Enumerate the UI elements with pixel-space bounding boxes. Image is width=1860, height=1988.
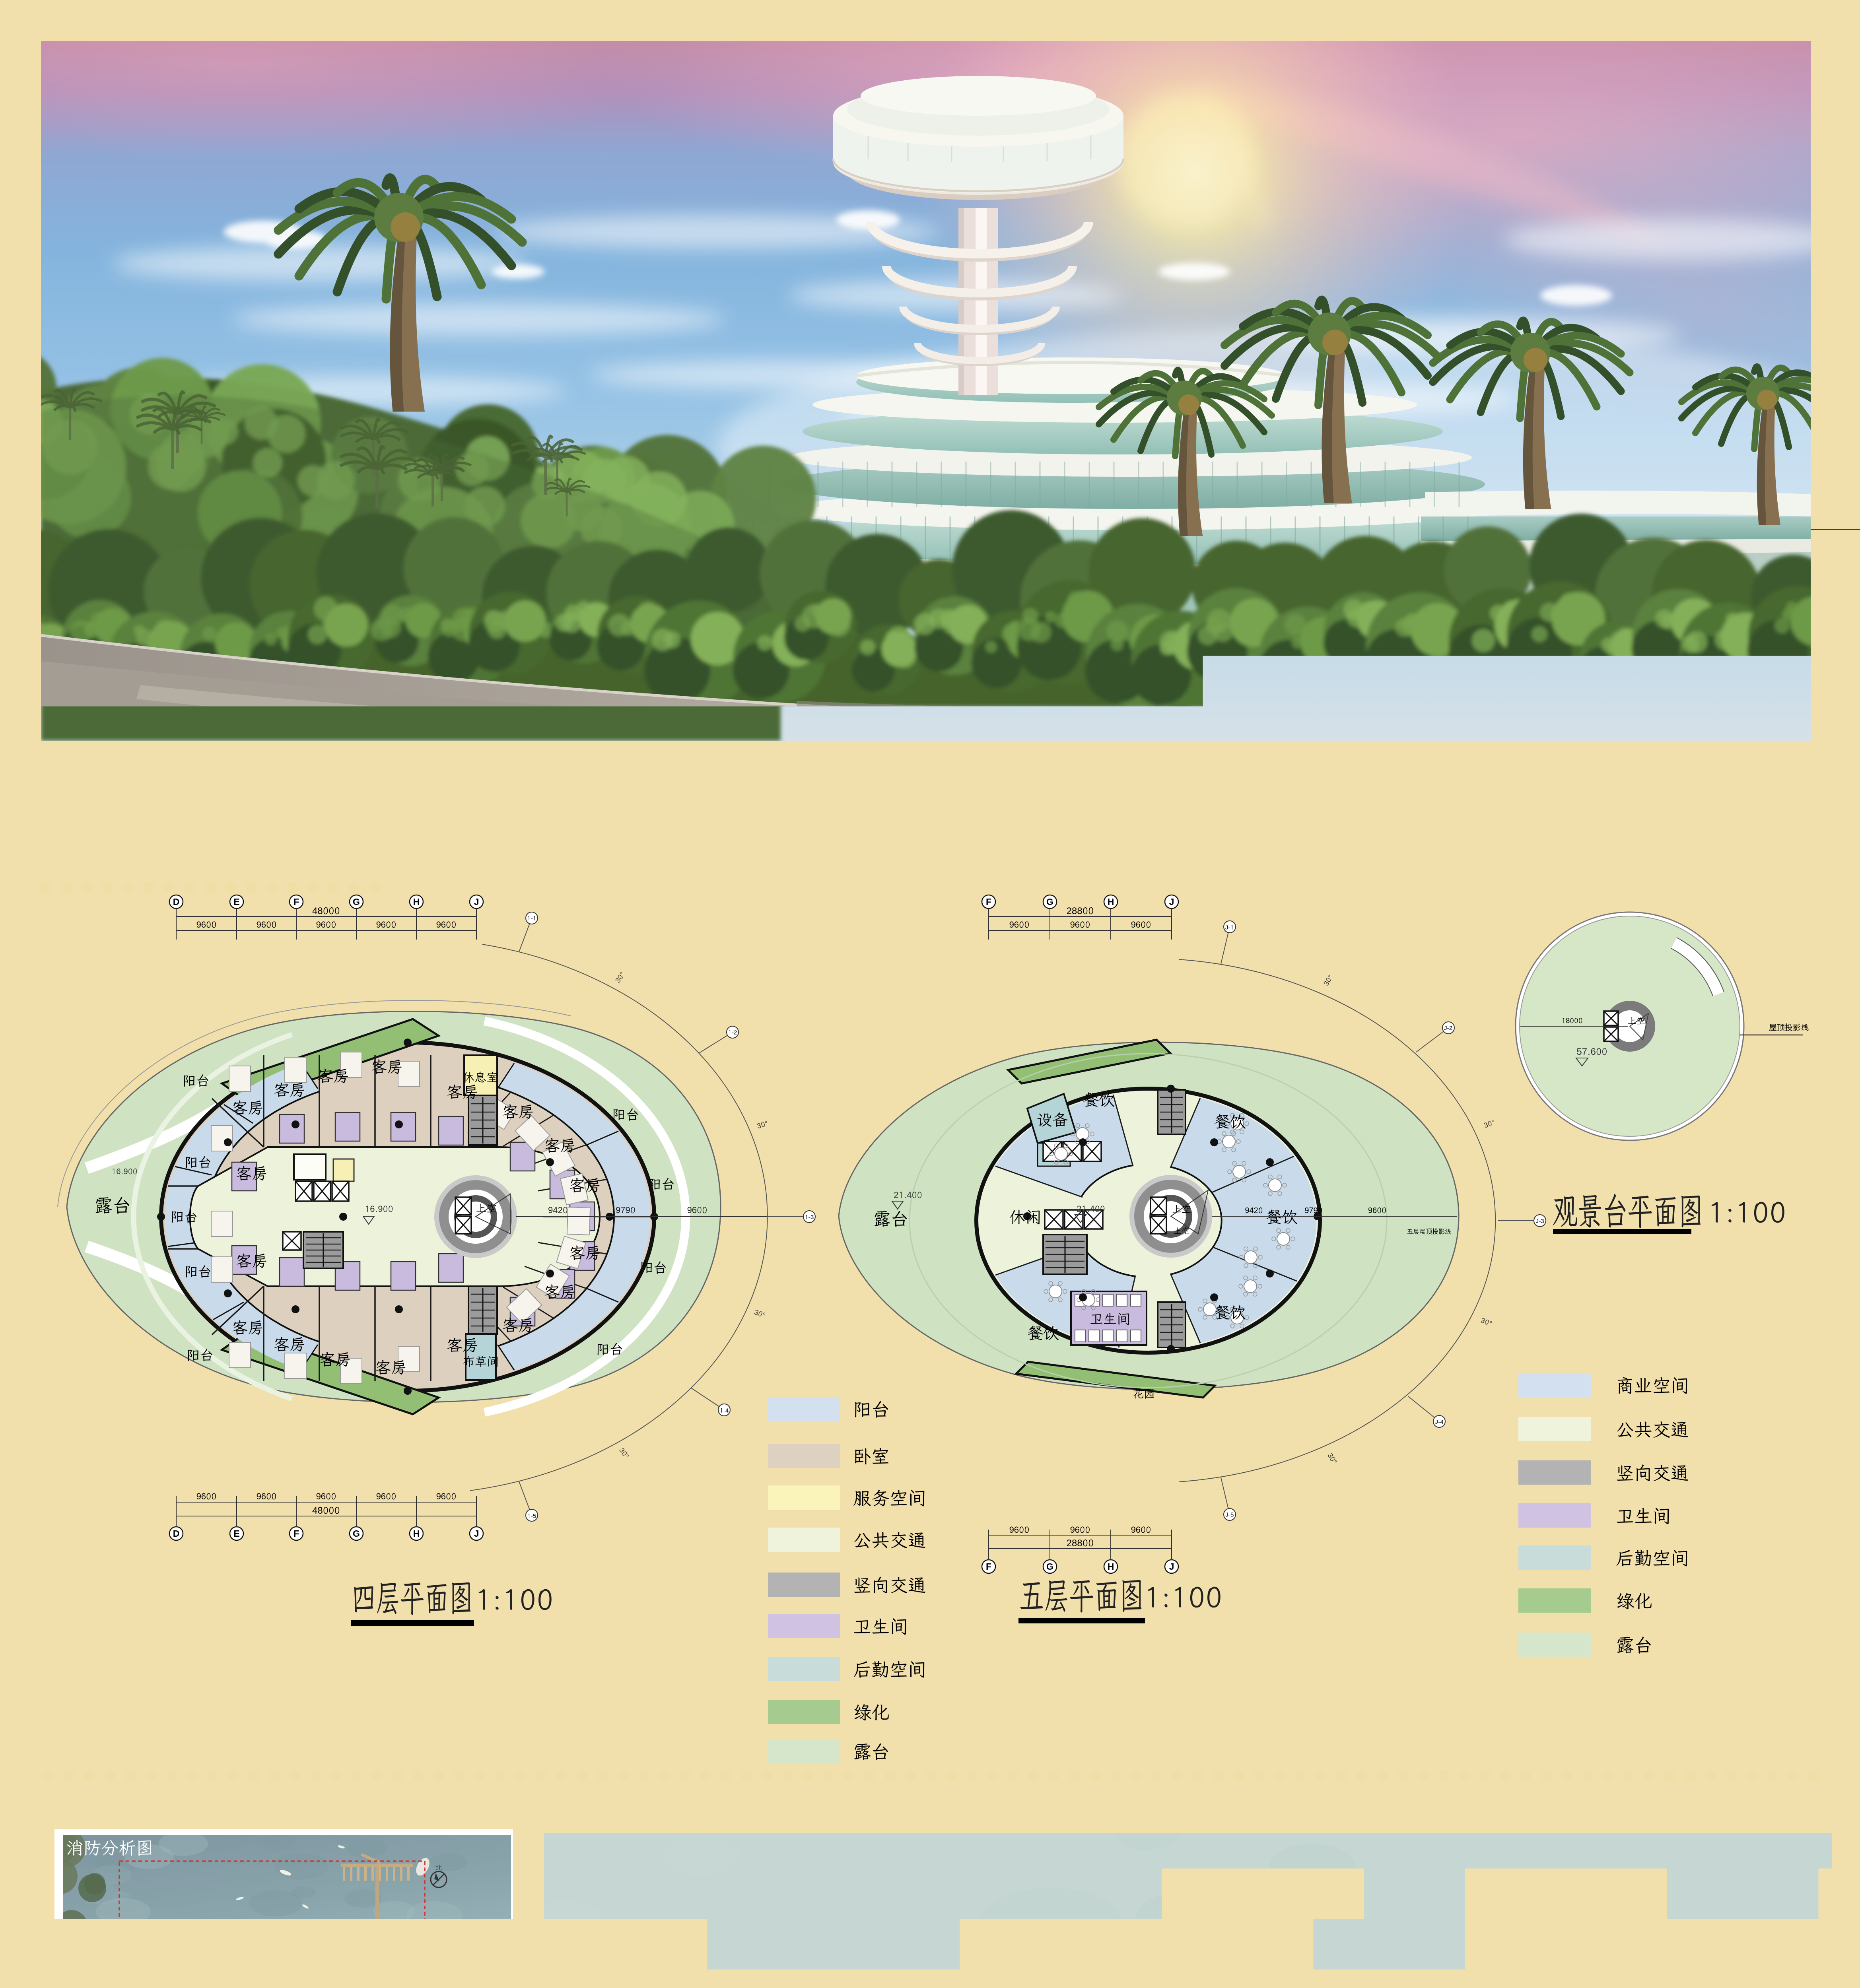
svg-text:客房: 客房 xyxy=(319,1349,351,1370)
svg-text:客房: 客房 xyxy=(236,1163,268,1184)
svg-text:H: H xyxy=(413,1527,420,1540)
svg-text:上空: 上空 xyxy=(476,1202,497,1215)
svg-text:F: F xyxy=(986,895,991,908)
svg-text:消防登高场地: 消防登高场地 xyxy=(458,1947,503,1957)
svg-text:卧室: 卧室 xyxy=(853,1444,890,1468)
svg-text:观景台平面图: 观景台平面图 xyxy=(1552,1186,1703,1235)
svg-text:9600: 9600 xyxy=(1070,1524,1090,1536)
svg-text:30°: 30° xyxy=(753,1307,767,1320)
svg-text:布草间: 布草间 xyxy=(463,1353,499,1369)
svg-text:阳台: 阳台 xyxy=(185,1262,212,1280)
svg-text:G: G xyxy=(1046,895,1053,908)
svg-text:阳台: 阳台 xyxy=(640,1258,667,1276)
svg-text:J: J xyxy=(474,1527,479,1540)
svg-text:E: E xyxy=(233,1527,239,1540)
svg-text:绿化: 绿化 xyxy=(853,1701,890,1724)
svg-text:9420: 9420 xyxy=(1245,1205,1263,1215)
svg-text:阳台: 阳台 xyxy=(648,1175,675,1193)
svg-text:9600: 9600 xyxy=(436,919,457,930)
svg-text:9600: 9600 xyxy=(1368,1205,1386,1215)
svg-text:客房: 客房 xyxy=(502,1315,534,1336)
svg-text:客房: 客房 xyxy=(236,1250,268,1271)
svg-text:四层平面图: 四层平面图 xyxy=(352,1573,473,1621)
svg-text:F: F xyxy=(293,895,299,908)
svg-text:18000: 18000 xyxy=(1561,1016,1582,1025)
svg-text:消防分析图: 消防分析图 xyxy=(66,1836,154,1859)
svg-text:客房: 客房 xyxy=(502,1101,534,1122)
svg-text:16.900: 16.900 xyxy=(365,1203,393,1215)
svg-text:客房: 客房 xyxy=(232,1317,264,1338)
svg-text:48000: 48000 xyxy=(312,1504,340,1516)
svg-text:9600: 9600 xyxy=(1009,1524,1030,1536)
svg-text:露台: 露台 xyxy=(873,1207,908,1230)
svg-text:客房: 客房 xyxy=(569,1242,601,1263)
svg-text:卫生间: 卫生间 xyxy=(1090,1310,1130,1328)
svg-text:1-4: 1-4 xyxy=(720,1407,729,1414)
svg-text:J: J xyxy=(474,895,479,908)
svg-text:服务空间: 服务空间 xyxy=(853,1486,926,1510)
svg-text:9600: 9600 xyxy=(1131,1524,1151,1536)
svg-text:公共交通: 公共交通 xyxy=(1616,1418,1689,1442)
svg-text:28800: 28800 xyxy=(1067,1536,1094,1549)
svg-text:9600: 9600 xyxy=(1009,919,1030,930)
svg-text:客房: 客房 xyxy=(371,1056,403,1077)
svg-text:餐饮: 餐饮 xyxy=(1083,1089,1115,1110)
svg-text:F: F xyxy=(293,1527,299,1540)
svg-text:21.400: 21.400 xyxy=(1077,1203,1105,1215)
svg-text:阳台: 阳台 xyxy=(183,1072,210,1089)
svg-text:H: H xyxy=(413,895,420,908)
svg-text:餐饮: 餐饮 xyxy=(1266,1207,1298,1227)
svg-text:阳台: 阳台 xyxy=(596,1340,623,1358)
svg-text:阳台: 阳台 xyxy=(612,1105,639,1123)
svg-text:客房: 客房 xyxy=(544,1281,576,1302)
svg-text:1-3: 1-3 xyxy=(805,1213,814,1221)
svg-text:28800: 28800 xyxy=(1067,904,1094,917)
svg-text:客房: 客房 xyxy=(274,1334,305,1355)
svg-text:绿化: 绿化 xyxy=(1616,1589,1652,1613)
svg-text:阳台: 阳台 xyxy=(185,1153,212,1171)
svg-text:客房: 客房 xyxy=(569,1175,601,1196)
svg-text:露台: 露台 xyxy=(94,1194,131,1217)
svg-text:F: F xyxy=(986,1560,991,1573)
svg-text:9790: 9790 xyxy=(616,1204,636,1216)
svg-text:卫生间: 卫生间 xyxy=(853,1615,908,1639)
svg-text:卫生间: 卫生间 xyxy=(1616,1504,1671,1528)
svg-text:21.400: 21.400 xyxy=(894,1189,922,1201)
svg-text:1:100: 1:100 xyxy=(1144,1578,1223,1615)
svg-text:阳台: 阳台 xyxy=(187,1346,214,1364)
svg-text:30°: 30° xyxy=(613,970,627,985)
svg-text:1-1: 1-1 xyxy=(527,915,536,922)
svg-text:上空: 上空 xyxy=(1628,1015,1645,1027)
svg-text:9600: 9600 xyxy=(257,1491,277,1502)
svg-text:48000: 48000 xyxy=(312,904,340,917)
svg-text:休息室: 休息室 xyxy=(463,1069,498,1085)
svg-text:9600: 9600 xyxy=(316,919,336,930)
svg-text:竖向交通: 竖向交通 xyxy=(853,1573,926,1597)
svg-text:后勤空间: 后勤空间 xyxy=(1616,1546,1689,1570)
svg-text:9600: 9600 xyxy=(436,1491,457,1502)
svg-text:客房: 客房 xyxy=(232,1097,264,1118)
svg-text:客房: 客房 xyxy=(317,1066,349,1086)
svg-text:9790: 9790 xyxy=(1304,1205,1322,1215)
svg-text:9600: 9600 xyxy=(196,1491,217,1502)
svg-text:9600: 9600 xyxy=(376,919,396,930)
svg-text:商业空间: 商业空间 xyxy=(1616,1374,1689,1398)
svg-text:五层层顶投影线: 五层层顶投影线 xyxy=(1407,1227,1451,1236)
svg-text:后勤空间: 后勤空间 xyxy=(853,1658,926,1681)
svg-text:J-1: J-1 xyxy=(1225,924,1234,931)
svg-text:餐饮: 餐饮 xyxy=(1027,1323,1059,1343)
svg-text:9600: 9600 xyxy=(376,1491,396,1502)
svg-text:餐饮: 餐饮 xyxy=(1214,1302,1246,1323)
svg-text:G: G xyxy=(353,895,360,908)
svg-text:休闲: 休闲 xyxy=(1009,1207,1041,1227)
svg-text:9600: 9600 xyxy=(1070,919,1090,930)
svg-text:30°: 30° xyxy=(1321,973,1335,987)
svg-text:J: J xyxy=(1169,895,1174,908)
svg-text:J: J xyxy=(1169,1560,1174,1573)
svg-text:花园: 花园 xyxy=(1133,1386,1155,1401)
svg-text:公共交通: 公共交通 xyxy=(853,1528,926,1552)
svg-text:露台: 露台 xyxy=(853,1740,890,1764)
svg-text:餐饮: 餐饮 xyxy=(1214,1111,1246,1132)
svg-text:1-5: 1-5 xyxy=(527,1512,536,1520)
svg-text:客房: 客房 xyxy=(375,1357,407,1378)
svg-text:设备: 设备 xyxy=(1036,1109,1068,1130)
svg-text:J-3: J-3 xyxy=(1535,1217,1544,1225)
svg-text:露台: 露台 xyxy=(1616,1633,1652,1657)
svg-text:16.900: 16.900 xyxy=(111,1166,137,1176)
svg-text:30°: 30° xyxy=(1479,1316,1493,1329)
svg-text:北: 北 xyxy=(436,1864,442,1872)
svg-text:E: E xyxy=(233,895,239,908)
svg-text:阳台: 阳台 xyxy=(853,1398,890,1421)
svg-text:屋顶投影线: 屋顶投影线 xyxy=(1769,1022,1809,1033)
svg-text:客房: 客房 xyxy=(447,1335,478,1355)
svg-text:消防流线: 消防流线 xyxy=(458,1959,488,1969)
svg-text:9600: 9600 xyxy=(687,1204,707,1216)
svg-text:D: D xyxy=(173,1527,180,1540)
svg-text:J-4: J-4 xyxy=(1435,1418,1443,1426)
svg-text:客房: 客房 xyxy=(274,1079,305,1100)
svg-text:阳台: 阳台 xyxy=(171,1208,198,1225)
svg-text:五层平面图: 五层平面图 xyxy=(1019,1571,1144,1619)
svg-text:H: H xyxy=(1108,895,1114,908)
svg-text:D: D xyxy=(173,895,180,908)
svg-text:9600: 9600 xyxy=(1131,919,1151,930)
svg-text:30°: 30° xyxy=(756,1118,769,1131)
svg-text:9600: 9600 xyxy=(257,919,277,930)
svg-text:竖向交通: 竖向交通 xyxy=(1616,1461,1689,1485)
svg-text:G: G xyxy=(353,1527,360,1540)
svg-text:J-2: J-2 xyxy=(1444,1025,1452,1032)
svg-text:J-5: J-5 xyxy=(1225,1511,1234,1519)
svg-text:1:100: 1:100 xyxy=(475,1580,554,1618)
svg-text:9600: 9600 xyxy=(196,919,217,930)
svg-text:1-2: 1-2 xyxy=(728,1029,737,1037)
svg-text:57.600: 57.600 xyxy=(1576,1045,1607,1058)
svg-text:30°: 30° xyxy=(1326,1451,1339,1466)
svg-text:客房: 客房 xyxy=(544,1135,576,1156)
svg-text:9420: 9420 xyxy=(548,1204,568,1216)
svg-text:30°: 30° xyxy=(1483,1118,1497,1130)
svg-text:9600: 9600 xyxy=(316,1491,336,1502)
svg-text:1:100: 1:100 xyxy=(1708,1193,1786,1231)
svg-text:30°: 30° xyxy=(617,1446,631,1460)
